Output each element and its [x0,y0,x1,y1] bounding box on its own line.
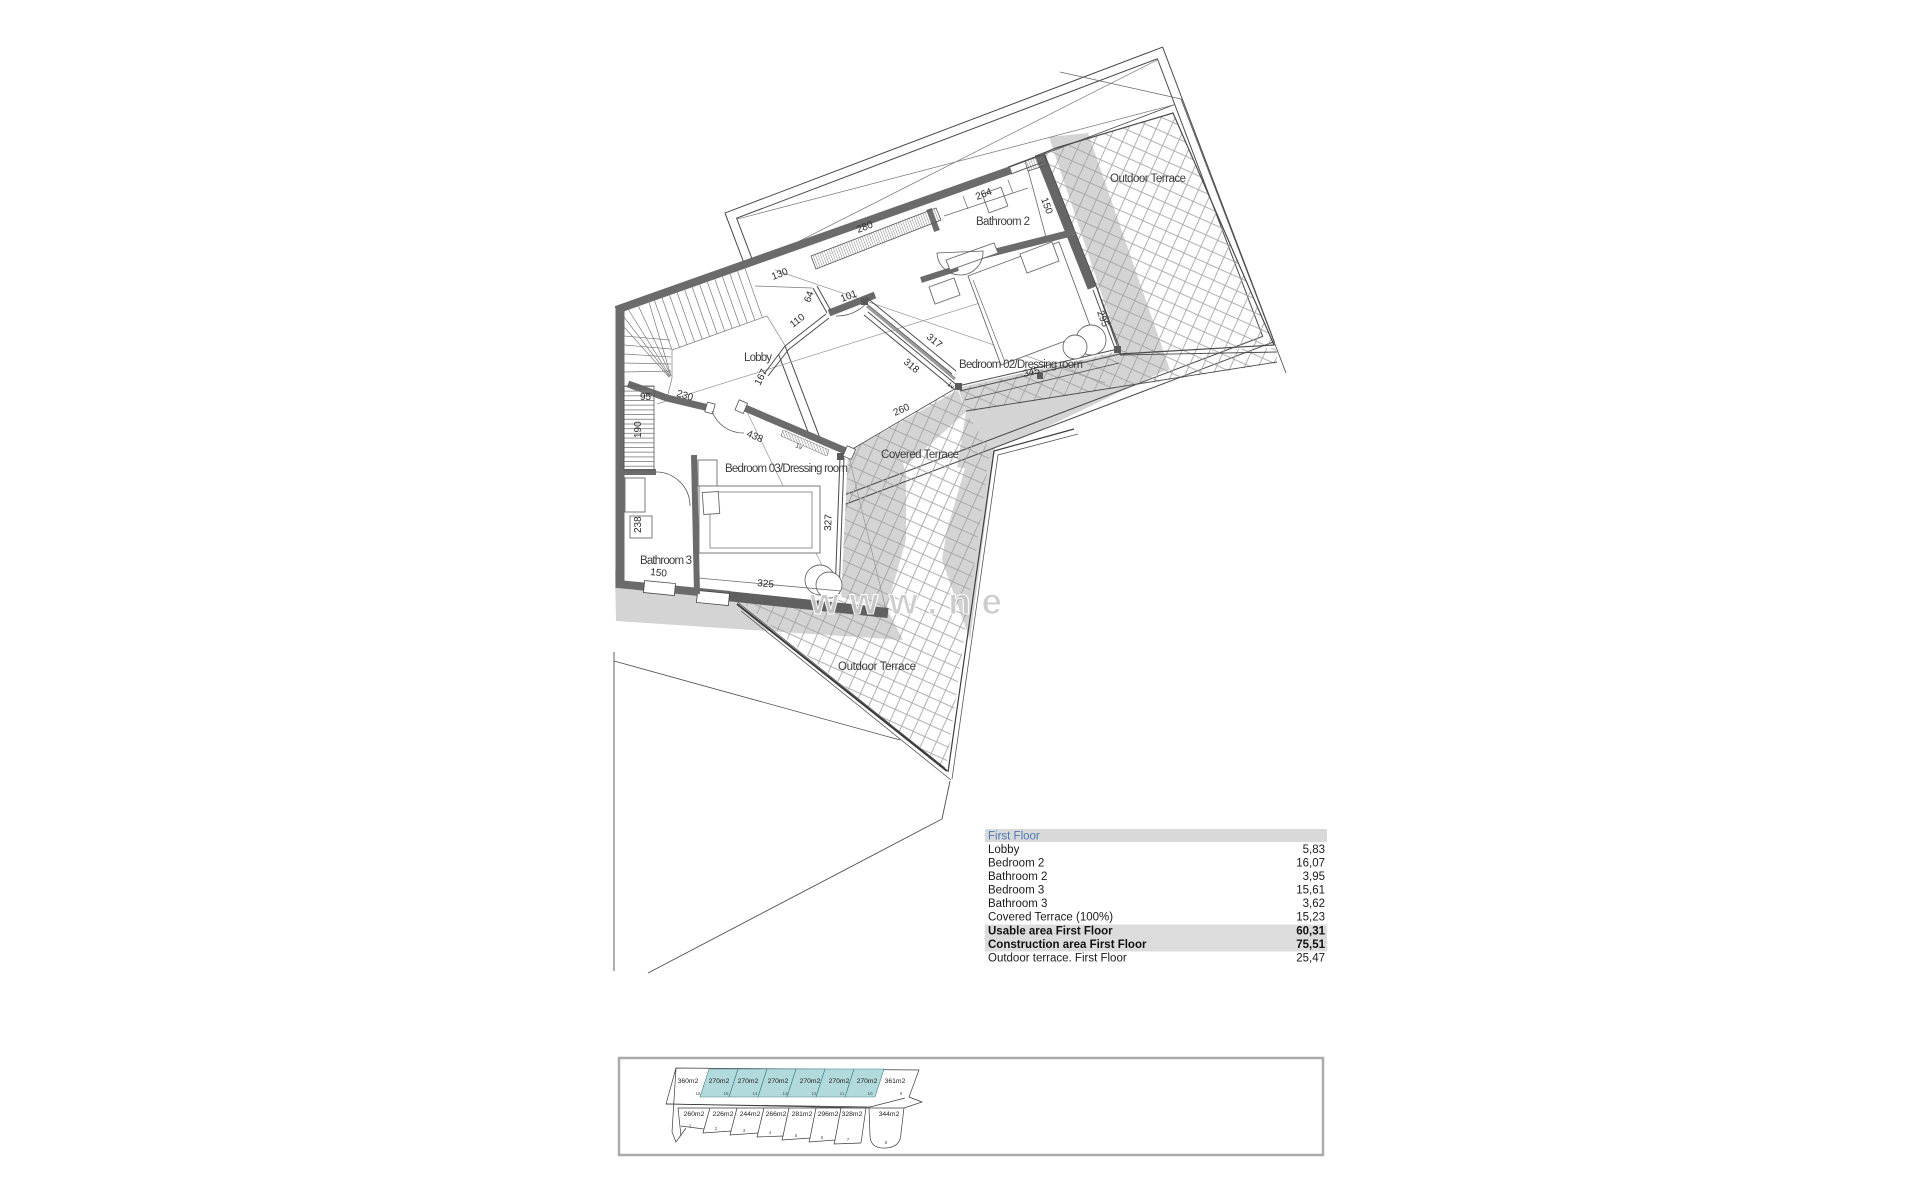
svg-text:Lobby: Lobby [744,352,772,364]
svg-text:226m2: 226m2 [713,1111,734,1118]
svg-text:95: 95 [640,392,652,403]
svg-text:Covered Terrace (100%): Covered Terrace (100%) [988,912,1113,924]
svg-text:15: 15 [723,1091,729,1096]
svg-text:Outdoor terrace. First Floor: Outdoor terrace. First Floor [988,953,1127,965]
svg-text:344m2: 344m2 [879,1111,900,1118]
svg-text:Bedroom 03/Dressing room: Bedroom 03/Dressing room [725,463,848,475]
svg-text:First Floor: First Floor [988,831,1040,843]
svg-text:14: 14 [752,1091,758,1096]
svg-text:3,95: 3,95 [1303,871,1325,883]
svg-text:Bathroom 3: Bathroom 3 [988,898,1047,910]
svg-text:150: 150 [650,567,668,580]
svg-text:75,51: 75,51 [1296,939,1325,951]
svg-text:244m2: 244m2 [740,1111,761,1118]
svg-text:270m2: 270m2 [800,1078,821,1085]
svg-text:281m2: 281m2 [792,1111,813,1118]
svg-text:Bathroom 2: Bathroom 2 [988,871,1047,883]
svg-text:361m2: 361m2 [885,1078,906,1085]
svg-text:11: 11 [840,1091,845,1096]
svg-text:270m2: 270m2 [829,1078,850,1085]
svg-text:Outdoor Terrace: Outdoor Terrace [1110,173,1186,185]
svg-text:190: 190 [633,421,644,438]
svg-text:325: 325 [757,578,775,590]
svg-text:16: 16 [695,1091,701,1096]
svg-text:296m2: 296m2 [818,1111,839,1118]
svg-text:270m2: 270m2 [709,1078,730,1085]
svg-text:260m2: 260m2 [684,1111,705,1118]
svg-text:25,47: 25,47 [1296,953,1325,965]
svg-text:360m2: 360m2 [678,1078,699,1085]
svg-text:Bathroom 3: Bathroom 3 [640,555,692,567]
svg-text:Bedroom 3: Bedroom 3 [988,885,1044,897]
svg-text:5,83: 5,83 [1303,844,1325,856]
svg-text:Usable area First Floor: Usable area First Floor [988,926,1113,938]
svg-text:Construction area First Floor: Construction area First Floor [988,939,1147,951]
svg-text:Covered Terrace: Covered Terrace [881,449,959,461]
svg-text:Lobby: Lobby [988,844,1020,856]
svg-text:Bedroom 02/Dressing room: Bedroom 02/Dressing room [959,359,1083,371]
svg-text:238: 238 [633,516,644,533]
svg-text:10: 10 [867,1091,873,1096]
svg-text:3,62: 3,62 [1303,898,1325,910]
svg-text:15,23: 15,23 [1296,912,1325,924]
svg-text:266m2: 266m2 [766,1111,787,1118]
svg-text:328m2: 328m2 [842,1111,863,1118]
svg-text:270m2: 270m2 [738,1078,759,1085]
svg-text:270m2: 270m2 [857,1078,878,1085]
svg-text:60,31: 60,31 [1296,926,1325,938]
svg-text:Bedroom 2: Bedroom 2 [988,858,1044,870]
svg-text:12: 12 [811,1091,817,1096]
svg-text:270m2: 270m2 [768,1078,789,1085]
svg-text:327: 327 [823,514,835,531]
svg-text:15,61: 15,61 [1296,885,1325,897]
svg-text:13: 13 [782,1091,788,1096]
svg-text:16,07: 16,07 [1296,858,1325,870]
svg-text:Outdoor Terrace: Outdoor Terrace [838,661,916,673]
svg-text:Bathroom 2: Bathroom 2 [976,216,1030,228]
